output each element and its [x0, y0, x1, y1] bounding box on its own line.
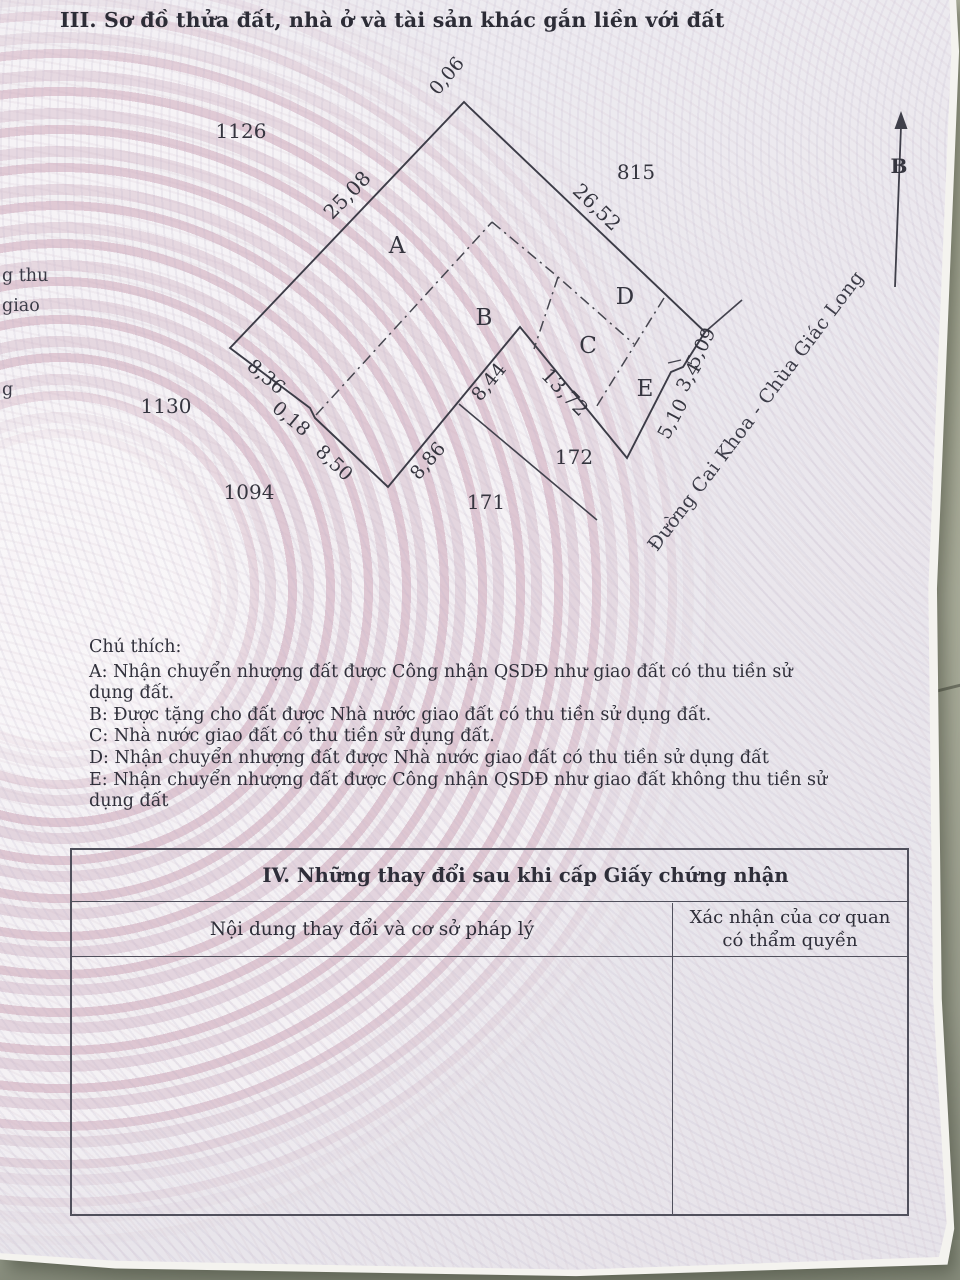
north-arrow-head	[895, 111, 908, 129]
parcel-label: B	[476, 305, 493, 331]
north-arrow-line	[895, 126, 901, 287]
confirmation-cell-empty	[673, 957, 907, 1214]
neighbor-parcel-label: 1130	[141, 394, 192, 418]
section-4-title: IV. Những thay đổi sau khi cấp Giấy chứn…	[72, 850, 907, 902]
changes-cell-empty	[72, 957, 673, 1214]
road-edge-corner-line	[705, 300, 742, 332]
parcel-label: C	[579, 333, 597, 359]
paper-stack: III. Sơ đồ thửa đất, nhà ở và tài sản kh…	[0, 0, 960, 1280]
section-4-table: IV. Những thay đổi sau khi cấp Giấy chứn…	[70, 848, 909, 1216]
column-header-confirmation: Xác nhận của cơ quan có thẩm quyền	[673, 903, 907, 956]
parcel-label: E	[637, 376, 654, 402]
column-header-changes: Nội dung thay đổi và cơ sở pháp lý	[72, 903, 673, 956]
legend-heading: Chú thích:	[89, 637, 829, 659]
legend-item: A: Nhận chuyển nhượng đất được Công nhận…	[89, 662, 829, 705]
certificate-page: III. Sơ đồ thửa đất, nhà ở và tài sản kh…	[0, 0, 960, 1280]
parcel-label: D	[616, 284, 634, 310]
legend-item: E: Nhận chuyển nhượng đất được Công nhận…	[89, 770, 829, 813]
legend-items: A: Nhận chuyển nhượng đất được Công nhận…	[89, 662, 829, 813]
neighbor-parcel-label: 815	[617, 160, 655, 184]
section-4-title-text: IV. Những thay đổi sau khi cấp Giấy chứn…	[262, 864, 788, 887]
table-header-row: Nội dung thay đổi và cơ sở pháp lý Xác n…	[72, 903, 907, 957]
dimension-tick	[668, 360, 681, 363]
neighbor-parcel-label: 1094	[224, 480, 275, 504]
legend-item: C: Nhà nước giao đất có thu tiền sử dụng…	[89, 726, 829, 748]
neighbor-parcel-label: 1126	[216, 119, 267, 143]
neighbor-parcel-label: 171	[467, 490, 505, 514]
north-label: B	[891, 154, 908, 178]
neighbor-parcel-label: 172	[555, 445, 593, 469]
table-body-row	[72, 957, 907, 1214]
legend-item: B: Được tặng cho đất được Nhà nước giao …	[89, 705, 829, 727]
photographed-certificate: { "colors": {"paper":"#eae7ee","pattern_…	[0, 0, 960, 1280]
map-legend: Chú thích: A: Nhận chuyển nhượng đất đượ…	[89, 637, 829, 813]
parcel-label: A	[389, 233, 406, 259]
legend-item: D: Nhận chuyển nhượng đất được Nhà nước …	[89, 748, 829, 770]
